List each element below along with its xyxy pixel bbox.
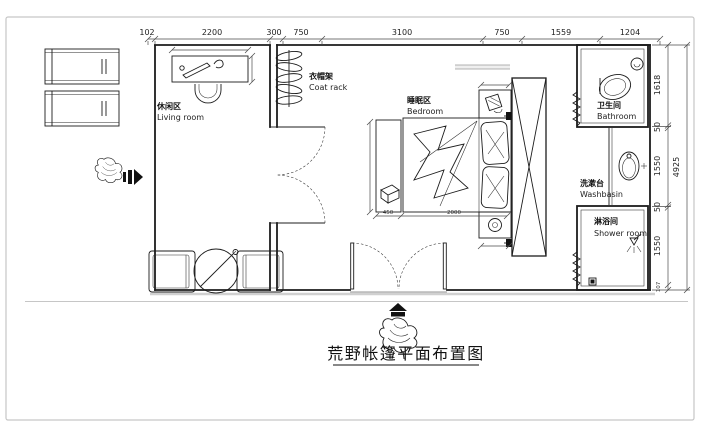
desk-chair bbox=[195, 84, 221, 103]
page-title: 荒野帐篷平面布置图 bbox=[327, 344, 485, 363]
interior-door-double bbox=[277, 127, 325, 223]
round-lamp bbox=[489, 219, 502, 232]
dim-ticks bbox=[145, 36, 663, 45]
outdoor-lounger-1 bbox=[45, 49, 119, 84]
entry-door-double bbox=[351, 243, 447, 289]
label-bedroom-en: Bedroom bbox=[407, 107, 443, 116]
wardrobe bbox=[512, 78, 546, 256]
dim-label: 300 bbox=[266, 28, 281, 37]
pillow-1 bbox=[481, 121, 510, 165]
dim-side-vertical bbox=[367, 119, 373, 215]
dim-label: 3100 bbox=[392, 28, 412, 37]
dim-label: 2000 bbox=[447, 210, 461, 216]
paper-holder bbox=[631, 58, 643, 70]
label-washbasin: 洗漱台 Washbasin bbox=[580, 178, 623, 199]
high-window bbox=[455, 65, 510, 69]
pen-sketch bbox=[183, 63, 210, 78]
dim-label: 1550 bbox=[653, 156, 662, 176]
label-coat-rack-zh: 衣帽架 bbox=[309, 71, 333, 81]
dim-chain-top: 102 2200 300 750 3100 750 1559 1204 bbox=[139, 28, 663, 45]
pillow-2 bbox=[481, 166, 509, 208]
label-living-zh: 休闲区 bbox=[156, 101, 181, 111]
label-bathroom-en: Bathroom bbox=[597, 112, 637, 121]
label-living-en: Living room bbox=[157, 113, 204, 122]
dim-label: 750 bbox=[494, 28, 509, 37]
dim-label: 450 bbox=[383, 210, 394, 216]
ground-line bbox=[25, 294, 688, 302]
dim-label: 750 bbox=[293, 28, 308, 37]
dim-label: 50 bbox=[653, 122, 662, 132]
side-table bbox=[376, 120, 401, 212]
eraser-sketch bbox=[214, 60, 223, 68]
coat-rack bbox=[276, 50, 303, 107]
sink bbox=[619, 152, 647, 180]
dim-label: 50 bbox=[653, 202, 662, 212]
dim-label: 2200 bbox=[202, 28, 222, 37]
bed bbox=[403, 118, 511, 212]
label-bedroom: 睡眠区 Bedroom bbox=[407, 95, 443, 116]
dim-chain-right: 1618 50 1550 50 1550 107 bbox=[652, 42, 671, 293]
toilet bbox=[596, 70, 634, 103]
wall-hatch bbox=[573, 252, 580, 286]
arrow-up-icon bbox=[389, 303, 407, 311]
blanket-sketch bbox=[414, 126, 468, 198]
round-table bbox=[194, 249, 238, 293]
label-shower-en: Shower room bbox=[594, 229, 647, 238]
label-washbasin-zh: 洗漱台 bbox=[580, 178, 604, 188]
wall-lamp-top bbox=[504, 112, 512, 120]
outdoor-lounger-2 bbox=[45, 91, 119, 126]
arrow-right-icon bbox=[134, 169, 143, 185]
dim-label: 1204 bbox=[620, 28, 640, 37]
floor-drain bbox=[589, 278, 596, 285]
label-coat-rack: 衣帽架 Coat rack bbox=[309, 71, 348, 92]
label-coat-rack-en: Coat rack bbox=[309, 83, 348, 92]
dim-total-label: 4925 bbox=[672, 157, 681, 177]
label-living: 休闲区 Living room bbox=[156, 101, 204, 122]
label-bathroom: 卫生间 Bathroom bbox=[597, 100, 637, 121]
dim-label: 1618 bbox=[653, 75, 662, 95]
label-shower-zh: 淋浴间 bbox=[594, 216, 618, 226]
label-shower: 淋浴间 Shower room bbox=[594, 216, 647, 238]
title-block: 荒野帐篷平面布置图 bbox=[327, 344, 485, 365]
label-bedroom-zh: 睡眠区 bbox=[407, 95, 431, 105]
dim-label: 1550 bbox=[653, 236, 662, 256]
dim-label: 1559 bbox=[551, 28, 571, 37]
entrance-arrow-bottom bbox=[389, 303, 407, 317]
box-sketch bbox=[381, 185, 399, 203]
label-washbasin-en: Washbasin bbox=[580, 190, 623, 199]
wall-hatch bbox=[573, 92, 580, 126]
dim-label: 107 bbox=[656, 281, 662, 292]
plant-sketch-left bbox=[95, 158, 122, 183]
dim-nightstand-small bbox=[478, 82, 512, 249]
desk bbox=[169, 47, 255, 85]
dim-bed: 450 2000 bbox=[373, 210, 510, 219]
entrance-arrow-left bbox=[123, 169, 143, 185]
floor-plan-svg: 102 2200 300 750 3100 750 1559 1204 1618… bbox=[0, 0, 701, 434]
floor-plan-page: 102 2200 300 750 3100 750 1559 1204 1618… bbox=[0, 0, 701, 434]
dim-label: 102 bbox=[139, 28, 154, 37]
label-bathroom-zh: 卫生间 bbox=[597, 100, 621, 110]
